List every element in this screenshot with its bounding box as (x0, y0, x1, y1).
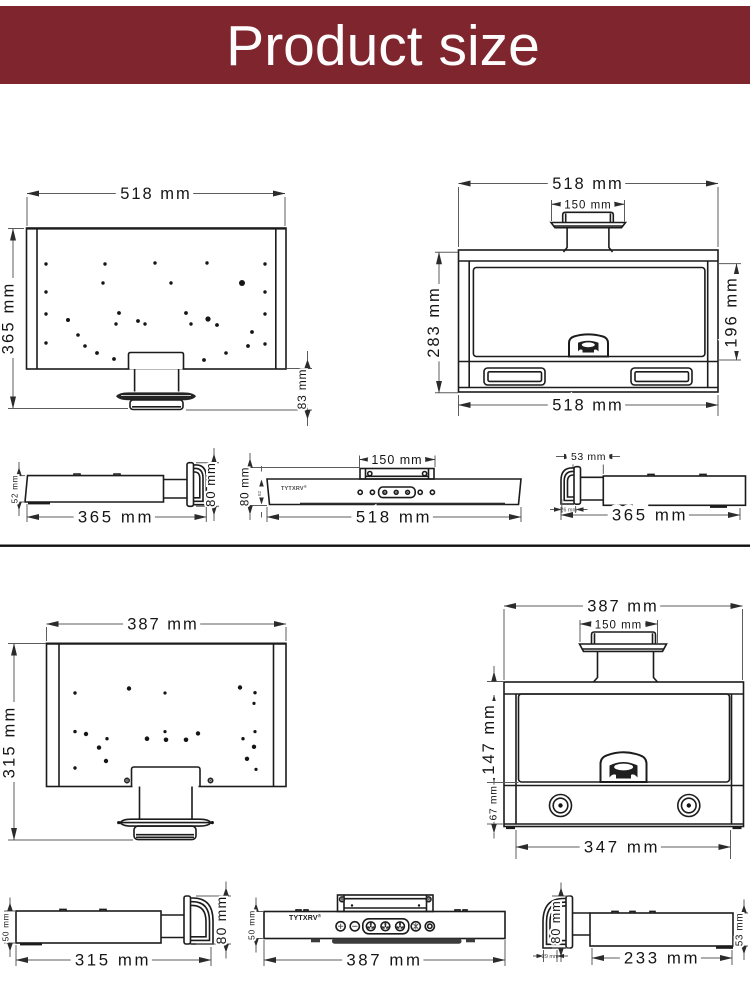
svg-text:80 mm: 80 mm (213, 896, 229, 945)
svg-text:Product size: Product size (226, 14, 540, 78)
svg-text:365 mm: 365 mm (0, 282, 18, 355)
svg-text:80 mm: 80 mm (203, 462, 218, 507)
svg-text:TYTXRV®: TYTXRV® (281, 484, 307, 492)
svg-text:147 mm: 147 mm (480, 703, 498, 775)
svg-text:315 mm: 315 mm (75, 951, 151, 970)
svg-text:518 mm: 518 mm (120, 185, 192, 203)
svg-text:26 mm: 26 mm (560, 507, 577, 513)
svg-text:518 mm: 518 mm (356, 508, 432, 527)
svg-text:315 mm: 315 mm (1, 706, 19, 779)
svg-text:53 mm: 53 mm (735, 913, 746, 947)
svg-text:387 mm: 387 mm (587, 598, 659, 616)
svg-text:150 mm: 150 mm (371, 453, 422, 467)
svg-text:83 mm: 83 mm (295, 369, 309, 410)
svg-text:233 mm: 233 mm (624, 949, 700, 968)
svg-text:387 mm: 387 mm (346, 951, 422, 970)
svg-text:518 mm: 518 mm (552, 175, 624, 193)
svg-text:52 mm: 52 mm (11, 475, 20, 503)
svg-text:150 mm: 150 mm (595, 620, 643, 632)
svg-text:80 mm: 80 mm (549, 900, 563, 943)
svg-text:29 mm: 29 mm (542, 954, 559, 960)
svg-text:80 mm: 80 mm (240, 467, 252, 506)
svg-text:67 mm: 67 mm (488, 785, 500, 820)
svg-text:518 mm: 518 mm (552, 397, 624, 415)
svg-text:365 mm: 365 mm (78, 508, 154, 527)
svg-text:50 mm: 50 mm (2, 913, 11, 941)
svg-text:365 mm: 365 mm (612, 506, 688, 525)
svg-text:387 mm: 387 mm (127, 616, 199, 634)
svg-text:196 mm: 196 mm (723, 276, 741, 348)
svg-text:347 mm: 347 mm (584, 838, 660, 857)
svg-text:52: 52 (257, 491, 262, 497)
svg-text:150 mm: 150 mm (564, 200, 612, 212)
svg-text:53 mm: 53 mm (571, 451, 606, 463)
svg-text:283 mm: 283 mm (425, 286, 443, 358)
svg-text:50 mm: 50 mm (247, 910, 257, 940)
